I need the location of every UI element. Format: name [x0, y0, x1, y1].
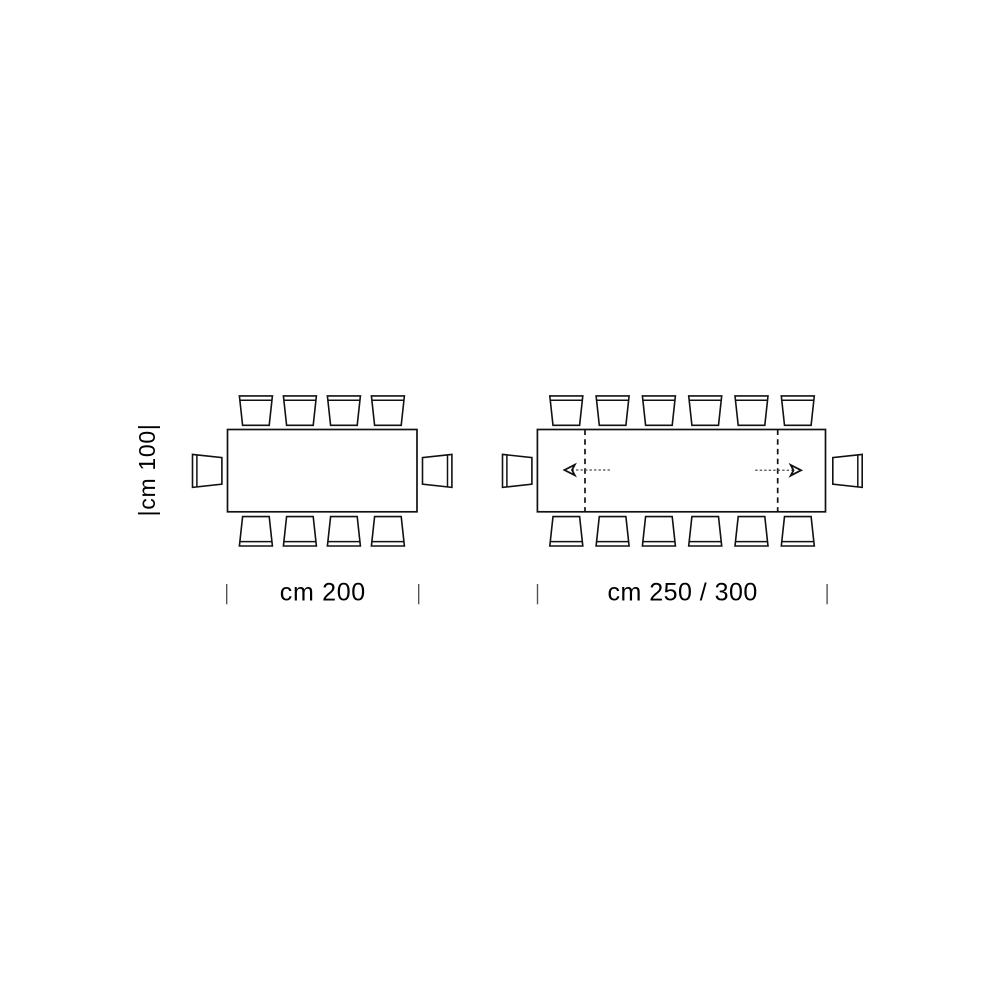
svg-text:|cm 100|: |cm 100|	[134, 424, 160, 516]
svg-text:cm 250 / 300: cm 250 / 300	[608, 579, 758, 607]
svg-text:cm 200: cm 200	[280, 579, 365, 607]
